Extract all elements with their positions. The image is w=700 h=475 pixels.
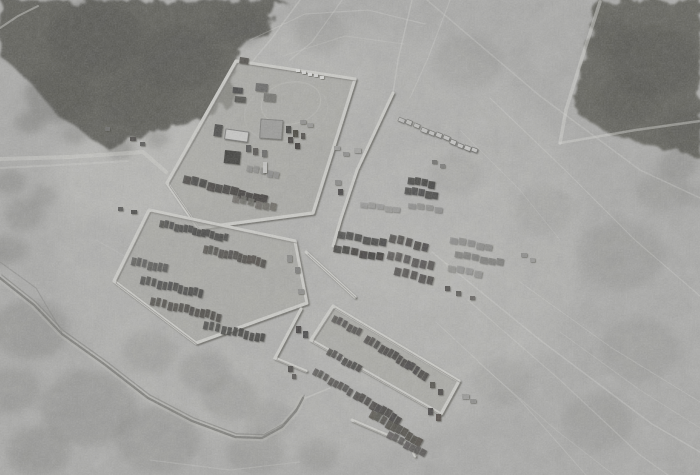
satellite-scene [0,0,700,475]
grain [0,0,700,475]
satellite-screenshot [0,0,700,475]
